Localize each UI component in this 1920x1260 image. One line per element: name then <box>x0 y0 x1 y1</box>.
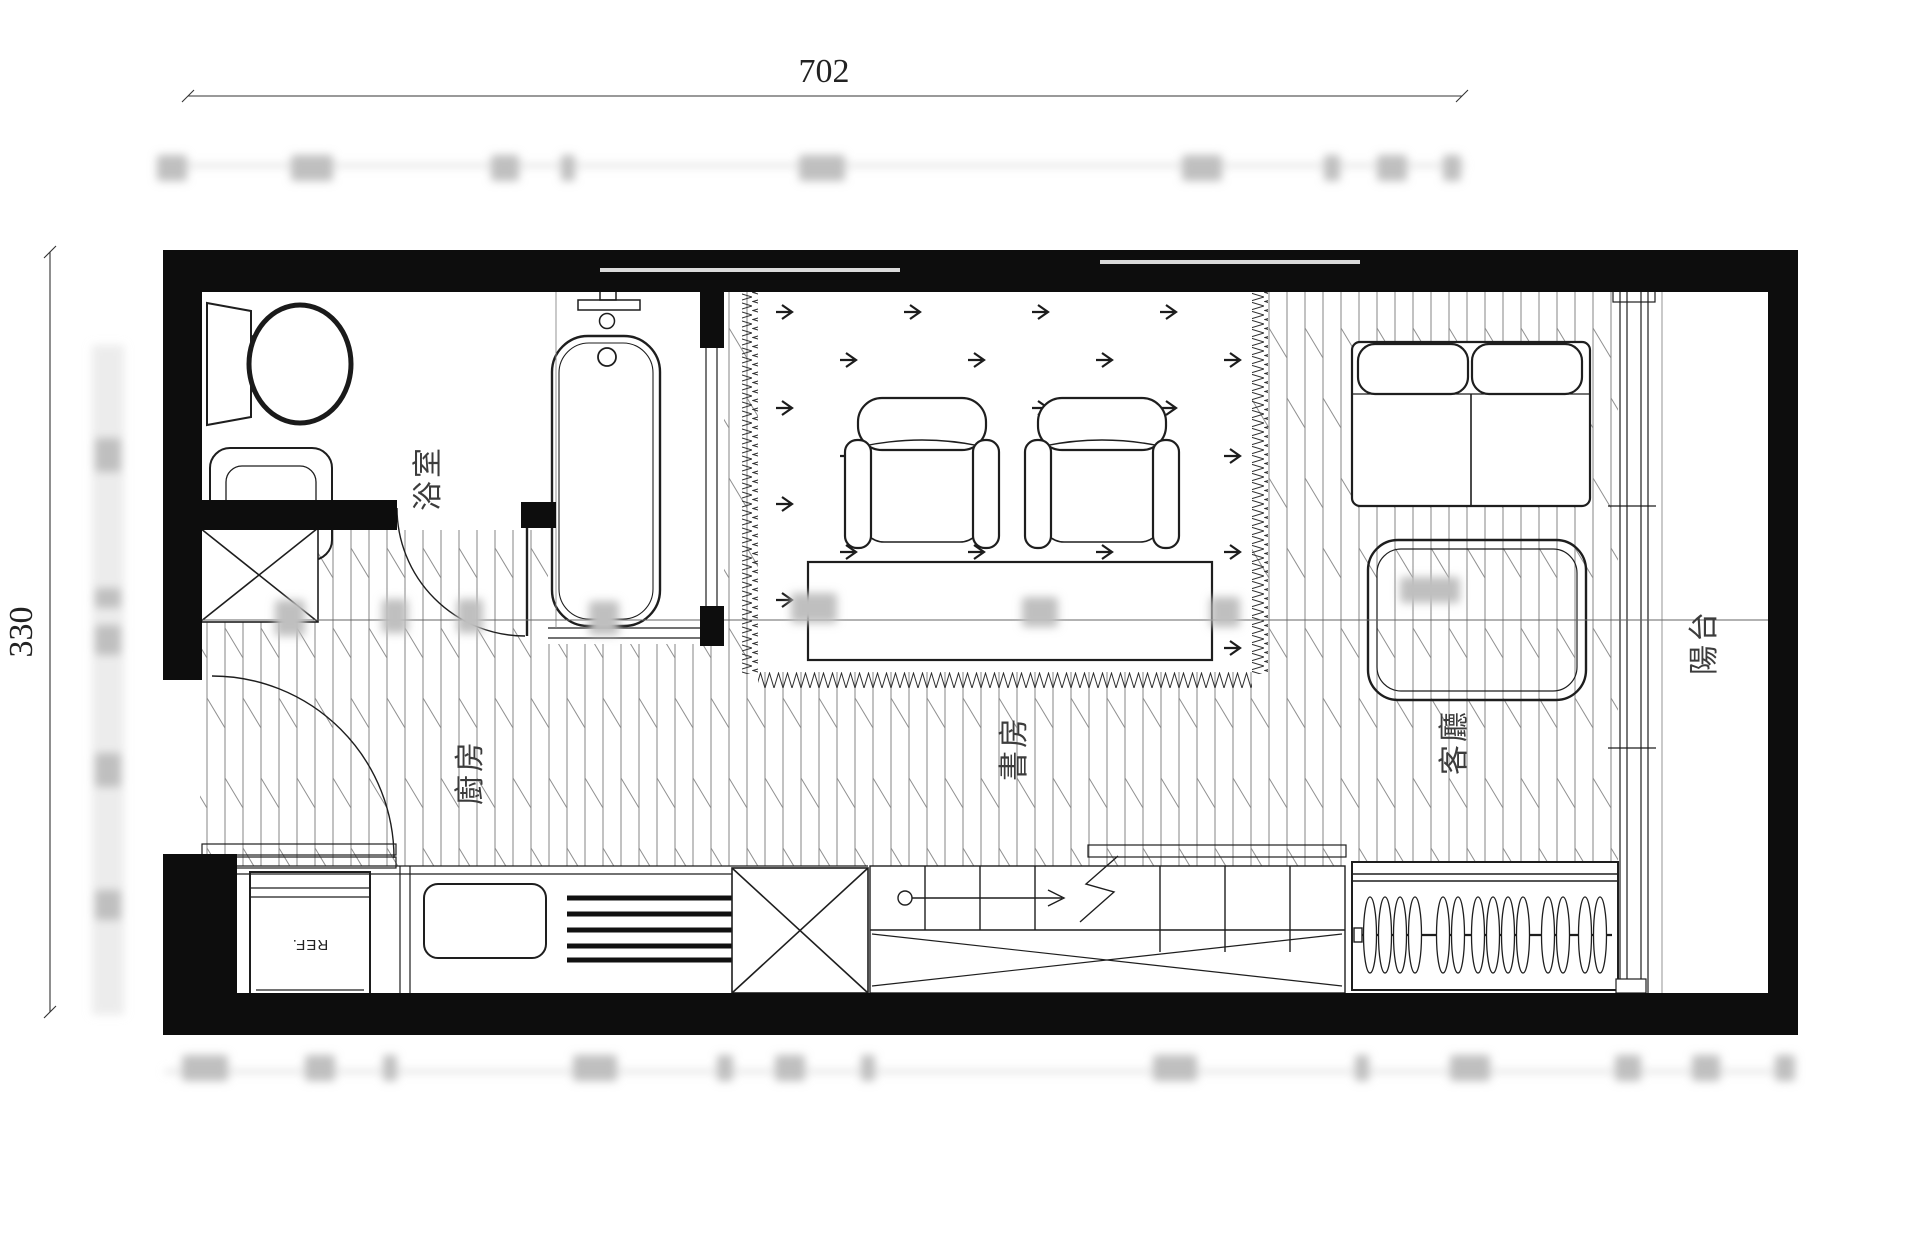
rug-fringe-right <box>1252 292 1268 674</box>
rug-fringe-left <box>742 292 758 674</box>
rug-fringe-bottom <box>758 672 1252 688</box>
total-height-dimension: 330 <box>3 607 40 658</box>
wall-corner-pier <box>200 854 237 993</box>
kitchen-label: 廚房 <box>454 739 487 805</box>
sofa <box>1352 342 1590 506</box>
dimension-left: 330 <box>3 246 56 1018</box>
armchair <box>845 398 999 548</box>
bathroom-floor <box>200 292 560 530</box>
floor-plan-drawing: REF. <box>0 0 1920 1260</box>
wall-bottom <box>163 993 1798 1035</box>
living-room-label: 客廳 <box>1438 709 1471 775</box>
toilet-bowl <box>249 305 351 423</box>
cabinet-x-box <box>732 868 868 993</box>
bathtub-alcove-floor <box>548 292 724 644</box>
balcony-label: 陽台 <box>1688 609 1721 675</box>
bathroom-partition <box>200 500 397 530</box>
total-width-dimension: 702 <box>799 53 850 90</box>
floor-plan-page: REF. <box>0 0 1920 1260</box>
dimension-top: 702 <box>182 53 1468 102</box>
bathroom-label: 浴室 <box>412 445 445 511</box>
tub-partition-end-bottom <box>700 606 724 646</box>
wall-right <box>1768 250 1798 1035</box>
staircase <box>870 856 1345 993</box>
armchair-2 <box>1025 398 1179 548</box>
wall-left-upper <box>163 250 202 680</box>
wall-top <box>163 250 1798 292</box>
study-label: 書房 <box>998 715 1031 781</box>
study-desk <box>808 562 1212 660</box>
refrigerator-label: REF. <box>292 936 329 953</box>
tub-partition-end-top <box>700 292 724 348</box>
